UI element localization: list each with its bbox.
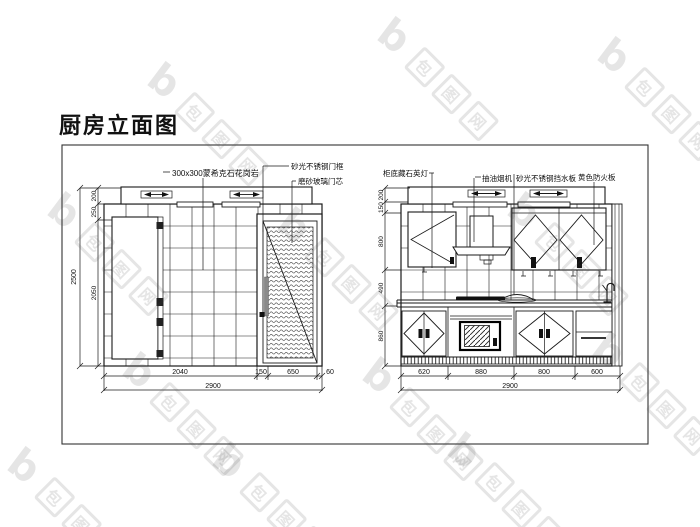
dim-bottom-total-right: 2900	[502, 383, 518, 390]
label-hood: 抽油烟机	[482, 173, 512, 183]
dim-right-860: 860	[378, 330, 385, 341]
hood-duct	[470, 216, 493, 247]
cabinet-handle	[546, 329, 550, 338]
cabinet-handle	[539, 329, 543, 338]
frosted-glass-door	[257, 214, 322, 366]
toe-kick	[401, 357, 612, 364]
label-lamp: 柜底藏石英灯	[383, 168, 428, 178]
dim-left-250: 250	[91, 206, 98, 217]
dim-bottom-880: 880	[475, 369, 487, 376]
cabinet-handle	[426, 329, 430, 338]
cabinet-handle	[450, 257, 454, 264]
lower-cabinet-left	[402, 311, 446, 356]
cabinet-handle	[577, 257, 582, 268]
soffit-step	[222, 202, 260, 207]
hinge	[157, 350, 164, 357]
cabinet-handle	[531, 257, 536, 268]
dim-bottom-60: 60	[326, 369, 334, 376]
oven-handle	[493, 338, 497, 346]
right-valance	[408, 187, 605, 207]
hinge	[157, 222, 164, 229]
dim-bottom-150: 150	[255, 369, 267, 376]
hinge	[157, 318, 164, 326]
drawer-unit	[576, 311, 612, 356]
dim-left-total: 2500	[71, 269, 78, 285]
cad-sheet: 厨房立面图	[0, 0, 700, 527]
dim-bottom-2040: 2040	[172, 369, 188, 376]
dim-bottom-600: 600	[591, 369, 603, 376]
dim-bottom-total: 2900	[205, 383, 221, 390]
lower-cabinet-right	[516, 311, 573, 356]
dim-left-200: 200	[91, 190, 98, 201]
hood-canopy	[453, 247, 510, 255]
dim-bottom-620: 620	[418, 369, 430, 376]
dim-bottom-800: 800	[538, 369, 550, 376]
elevation-drawing-svg: 300x300蒙希克石花岗岩 砂光不锈钢门框 磨砂玻璃门芯 2500 200 2…	[0, 0, 700, 527]
label-fireboard: 黄色防火板	[578, 172, 616, 182]
soffit-step	[518, 202, 570, 207]
oven-window	[465, 326, 490, 347]
dim-right-200: 200	[378, 189, 385, 200]
dim-right-150: 150	[378, 202, 385, 213]
label-splash: 砂光不锈钢挡水板	[516, 173, 576, 183]
soffit-step	[177, 202, 213, 207]
label-door-core: 磨砂玻璃门芯	[298, 176, 343, 186]
hinge	[157, 298, 164, 306]
dim-right-800: 800	[378, 236, 385, 247]
upper-cabinet-right	[512, 208, 606, 276]
dim-bottom-650: 650	[287, 369, 299, 376]
cabinet-handle	[419, 329, 423, 338]
label-granite: 300x300蒙希克石花岗岩	[172, 168, 259, 178]
left-plain-door	[112, 217, 164, 359]
label-door-frame: 砂光不锈钢门框	[291, 161, 344, 171]
left-valance	[121, 187, 312, 207]
dim-right-490: 490	[378, 282, 385, 293]
door-handle	[265, 277, 269, 316]
soffit-step	[453, 202, 507, 207]
dim-left-2050: 2050	[91, 285, 98, 300]
door-knob	[260, 312, 265, 317]
cooktop	[456, 297, 505, 301]
